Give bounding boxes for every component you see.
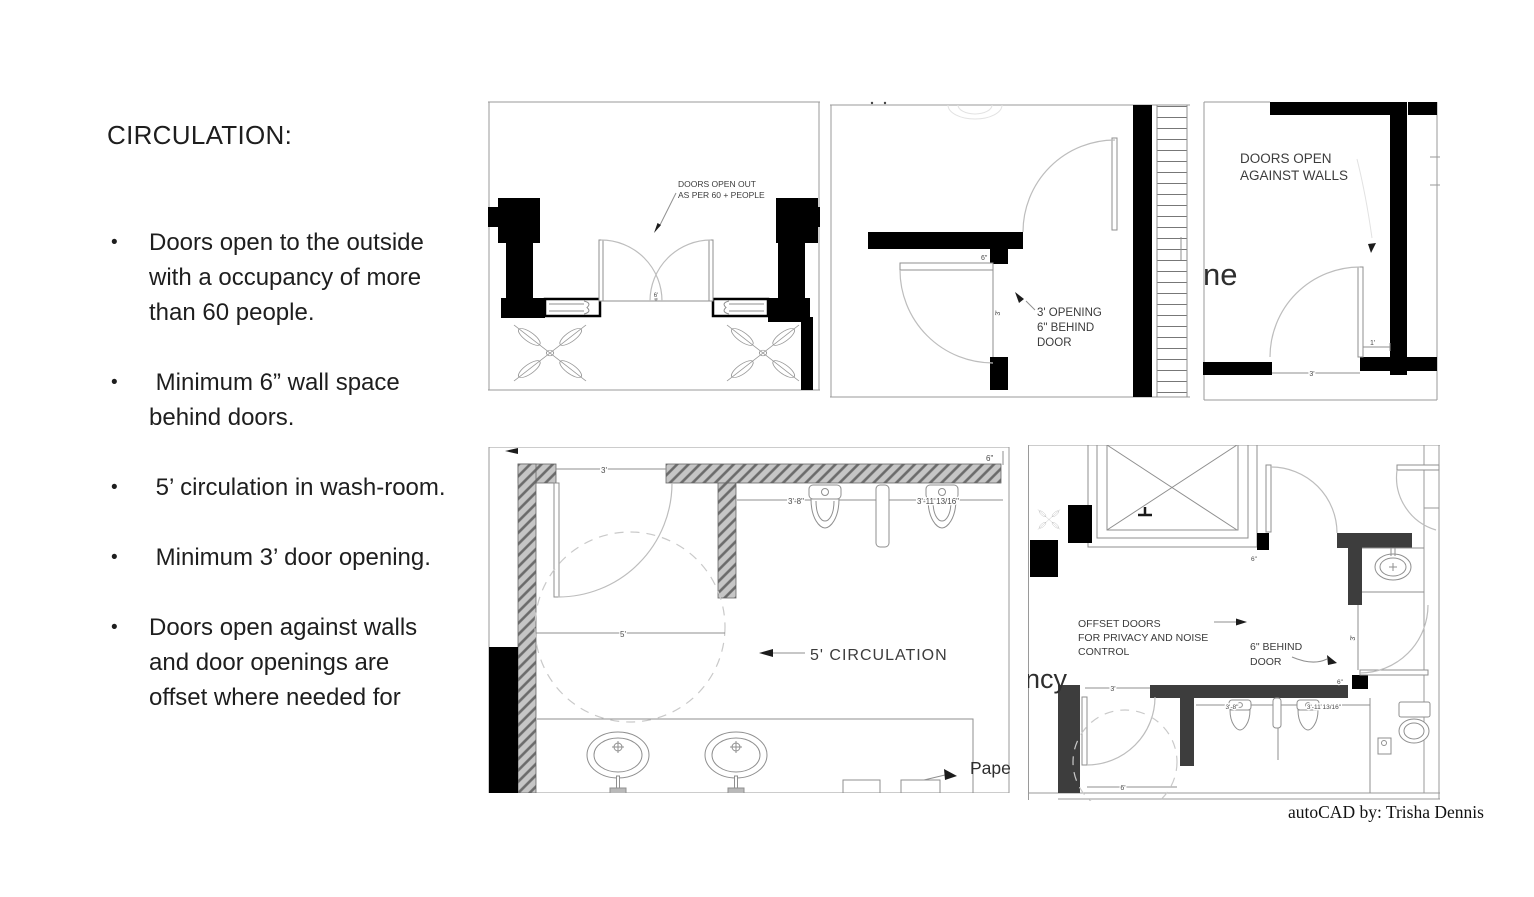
bullet-text: 5’ circulation in wash-room. xyxy=(149,470,451,505)
door-top-center xyxy=(1266,465,1337,533)
dim-label: 3'-8" xyxy=(788,497,804,506)
door xyxy=(1270,267,1363,357)
bullet-marker: • xyxy=(107,610,149,715)
dim-label: 3' xyxy=(1350,635,1357,640)
plant-icon xyxy=(727,325,799,381)
annotation-text: DOOR xyxy=(1037,337,1072,349)
stairs xyxy=(1157,105,1187,397)
annotation-text: AS PER 60 + PEOPLE xyxy=(678,190,765,200)
panel-border xyxy=(488,102,820,390)
partial-text: ncy xyxy=(1028,664,1068,694)
partial-text: Pape xyxy=(970,758,1010,778)
dim-label: 6" xyxy=(1251,556,1258,563)
dim-label: 1' xyxy=(1370,340,1375,347)
annotation-leader xyxy=(654,193,676,233)
circulation-arrow xyxy=(759,649,805,657)
opening-plan-panel: 6" 3' 3' OPENING 6" BEHIND DOOR xyxy=(830,85,1190,400)
bullet-item: • Doors open to the outside with a occup… xyxy=(107,225,452,330)
offset-doors-panel: 6" 3' 6" OFFSET DOORS FOR PRIVACY AND NO… xyxy=(1028,445,1440,801)
door-frame-left xyxy=(545,299,600,316)
door-lower xyxy=(900,263,993,363)
bullet-marker: • xyxy=(107,540,149,575)
wall-black xyxy=(489,647,518,793)
bullet-marker: • xyxy=(107,470,149,505)
bullet-text: Doors open against walls and door openin… xyxy=(149,610,451,715)
annotation-text: AGAINST WALLS xyxy=(1240,168,1348,183)
corner-sink xyxy=(1362,548,1424,592)
annotation-text: 6" BEHIND xyxy=(1037,322,1094,334)
partial-text: ne xyxy=(1203,257,1237,292)
dim-label: 3'-8" xyxy=(1226,704,1240,711)
ceiling-arc xyxy=(871,102,1002,119)
entry-door xyxy=(554,469,672,597)
dim-label: 3' xyxy=(1110,686,1115,693)
bullet-marker: • xyxy=(107,365,149,435)
dim-label: 3' xyxy=(995,310,1002,315)
annotation-text: 6" BEHIND xyxy=(1250,641,1303,653)
toilet xyxy=(1378,702,1430,754)
annotation-leader xyxy=(1357,159,1376,253)
dim-label: 5' xyxy=(620,630,626,639)
washroom-plan-panel: 3' 6" 5' 3'-8" 3'-11 13/16" 5' CIRCULATI… xyxy=(488,447,1010,793)
turning-circle xyxy=(535,532,725,722)
dim-label: 6" xyxy=(1337,679,1344,686)
text-column: CIRCULATION: • Doors open to the outside… xyxy=(107,120,452,750)
annotation-text: FOR PRIVACY AND NOISE xyxy=(1078,632,1208,644)
circulation-label: 5' CIRCULATION xyxy=(810,647,948,664)
door-middle-right xyxy=(1358,605,1428,675)
entrance-plan-panel: 6' DOORS OPEN OUT AS PER 60 + PEOPLE xyxy=(488,100,820,392)
double-door xyxy=(599,240,713,301)
bullet-item: • Minimum 6” wall space behind doors. xyxy=(107,365,452,435)
bullet-item: • Doors open against walls and door open… xyxy=(107,610,452,715)
bullet-list: • Doors open to the outside with a occup… xyxy=(107,225,452,715)
credit-text: autoCAD by: Trisha Dennis xyxy=(1288,802,1484,823)
dim-label: 3'-11 13/16" xyxy=(1307,704,1342,711)
door-top-right xyxy=(1397,465,1439,530)
annotation-text: CONTROL xyxy=(1078,646,1129,658)
dim-label: 6" xyxy=(986,454,993,463)
bullet-text: Doors open to the outside with a occupan… xyxy=(149,225,451,330)
plant-icon xyxy=(1038,510,1060,530)
annotation-text: 3' OPENING xyxy=(1037,307,1102,319)
dim-label: 3' xyxy=(601,466,607,475)
door-upper xyxy=(1023,138,1117,232)
urinal-divider xyxy=(876,485,889,547)
dim-label: 6' xyxy=(1120,785,1125,792)
dim-label: 3' xyxy=(1309,371,1314,378)
dispensers xyxy=(843,780,940,793)
walls xyxy=(1203,102,1437,375)
bullet-item: • Minimum 3’ door opening. xyxy=(107,540,452,575)
elevator-shaft xyxy=(1088,445,1257,547)
annotation-text: DOOR xyxy=(1250,656,1282,668)
bottom-fixtures xyxy=(1196,698,1370,793)
annotation-text: DOORS OPEN xyxy=(1240,151,1332,166)
tick-arrow xyxy=(505,448,518,454)
paper-leader xyxy=(924,769,957,780)
bullet-text: Minimum 6” wall space behind doors. xyxy=(149,365,451,435)
walls xyxy=(868,105,1152,397)
door-frame-right xyxy=(713,299,768,316)
dim-label: 6" xyxy=(981,255,988,262)
dim-label: 6' xyxy=(654,293,658,299)
bullet-marker: • xyxy=(107,225,149,330)
annotation-arrow xyxy=(1214,619,1247,626)
bullet-text: Minimum 3’ door opening. xyxy=(149,540,451,575)
annotation-text: OFFSET DOORS xyxy=(1078,618,1161,630)
against-walls-panel: DOORS OPEN AGAINST WALLS ne 1' 3' xyxy=(1200,95,1440,405)
slide: CIRCULATION: • Doors open to the outside… xyxy=(0,0,1534,897)
bullet-item: • 5’ circulation in wash-room. xyxy=(107,470,452,505)
plant-icon xyxy=(514,325,586,381)
dim-label: 3'-11 13/16" xyxy=(917,497,959,506)
annotation-leader xyxy=(1292,655,1337,665)
annotation-leader xyxy=(1015,292,1035,310)
annotation-text: DOORS OPEN OUT xyxy=(678,179,756,189)
page-title: CIRCULATION: xyxy=(107,120,452,151)
